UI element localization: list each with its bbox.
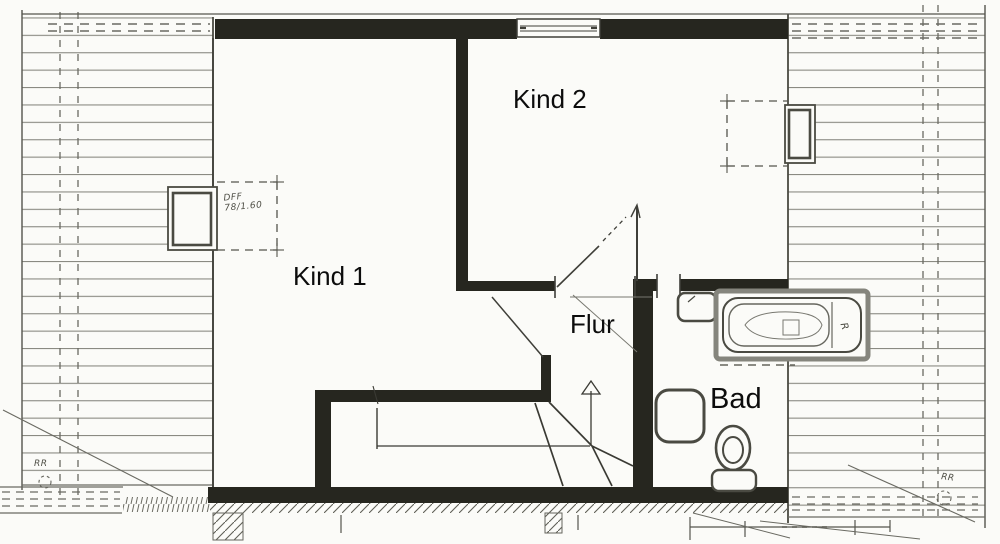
skylight-right	[720, 94, 815, 173]
room-label-kind2: Kind 2	[513, 86, 587, 113]
skylight-annotation: DFF 78/1.60	[223, 190, 263, 214]
toilet	[712, 426, 756, 491]
rr-annotation-left: RR	[34, 459, 48, 469]
door-kind2	[555, 205, 640, 298]
roof-hatch-left	[3, 10, 213, 497]
room-label-kind1: Kind 1	[293, 263, 367, 290]
room-label-bad: Bad	[710, 384, 762, 414]
window-top	[517, 19, 600, 37]
room-label-flur: Flur	[570, 311, 615, 338]
door-kind1	[492, 297, 543, 357]
washbasin	[678, 293, 716, 321]
skylight-left	[168, 175, 284, 257]
roof-hatch-right	[788, 5, 985, 528]
door-bad	[657, 274, 680, 298]
floorplan: Kind 1 Kind 2 Flur Bad DFF 78/1.60 RR RR…	[0, 0, 1000, 544]
rr-annotation-right: RR	[940, 472, 955, 484]
shower-tray	[656, 390, 704, 442]
floorplan-linework	[0, 0, 1000, 544]
